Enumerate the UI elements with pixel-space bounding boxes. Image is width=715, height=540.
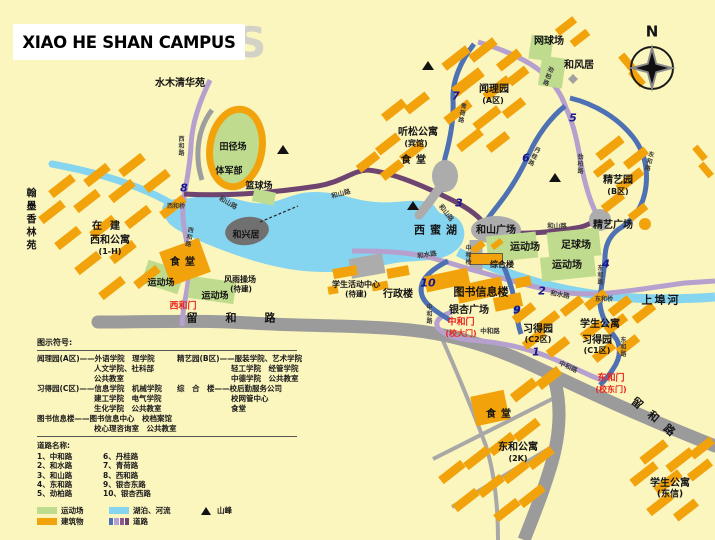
legend-divider (37, 350, 297, 351)
campus-map: S XIAO HE SHAN CAMPUS 水木清华苑田径场体军部篮球场网球场和… (0, 0, 715, 540)
legend-symbol-label: 运动场 (61, 505, 95, 516)
label-zuqiuchang: 足球场 (561, 241, 591, 251)
legend-road-name: 7、青荷路 (103, 461, 193, 470)
legend-road-name: 4、东和路 (37, 480, 103, 489)
label-xuesheng-gongyu-c: 学生公寓 (580, 320, 620, 330)
label-yundongchang-e2: 运动场 (552, 261, 582, 271)
label-wenliyuan: 闻理园 (479, 85, 509, 95)
legend-road-name: 3、和山路 (37, 471, 103, 480)
label-tushuxinxilou: 图书信息楼 (454, 287, 509, 298)
label-gate-zhonghemen: 中和门 (447, 319, 474, 328)
water-swatch-icon (109, 507, 129, 514)
label-lanqiuchang: 篮球场 (245, 183, 272, 192)
label-zonghelou: 综合楼 (490, 261, 514, 269)
legend-entry-line: 轻工学院 经管学院 (231, 364, 302, 374)
peak-triangle-icon (201, 507, 211, 515)
label-shuimuqinghuayuan: 水木清华苑 (155, 79, 205, 89)
legend-symbol-row: 建筑物 道路 (37, 516, 302, 527)
label-zaijian: 在建 (92, 222, 128, 232)
road-label-xihelu-2: 西和路 (183, 226, 193, 248)
label-wenliyuan-zone: (A区) (482, 97, 504, 105)
legend-entry-line: 生化学院 公共教室 (94, 404, 177, 414)
label-yundongchang-w2: 运动场 (201, 293, 228, 302)
label-shitang-west: 食堂 (170, 258, 200, 268)
road-number-5: 5 (569, 113, 577, 124)
building-swatch-icon (37, 518, 57, 525)
legend-road-names: 1、中和路6、丹桂路2、和水路7、青荷路3、和山路8、西和路4、东和路9、银杏东… (37, 452, 302, 498)
label-donghegongyu-sub: (2K) (508, 455, 527, 463)
label-jingyiyuan-zone: (B区) (607, 188, 628, 196)
legend-entry-line: 校网管中心 (231, 394, 302, 404)
label-xingzhenglou: 行政楼 (383, 290, 413, 300)
label-xideyuan-c2-zone: (C2区) (525, 336, 552, 344)
label-xuesheng-huodong-zhongxin: 学生活动中心 (332, 281, 380, 289)
road-number-7: 7 (452, 91, 460, 102)
road-label-heshanlu-2: 和山路 (331, 188, 352, 199)
label-gate-xihemen: 西和门 (169, 303, 196, 312)
legend-explanations: 闻理园(A区)——外语学院 理学院人文学院、社科部公共教室习得园(C区)——信息… (37, 354, 302, 434)
label-tingsonggongyu: 听松公寓 (398, 128, 438, 138)
label-xihegongyu-sub: (1-H) (99, 248, 122, 256)
road-swatch-icon (109, 518, 129, 525)
road-label-donghelu-3: 东和路 (619, 337, 625, 358)
legend-symbol-row: 运动场 湖泊、河流 山峰 (37, 505, 302, 516)
label-ximihu: 西蜜湖 (414, 225, 462, 236)
label-yinxing-guangchang: 银杏广场 (449, 306, 489, 316)
label-zhongheqiao: 中和桥 (464, 245, 470, 266)
legend-entry-line: 中德学院 公共教室 (231, 374, 302, 384)
legend-symbol-label: 山峰 (217, 505, 232, 516)
label-xideyuan-c2: 习得园 (523, 325, 553, 335)
label-gate-zhonghemen-sub: (校大门) (445, 330, 476, 338)
label-dongheqiao: 东和桥 (595, 297, 613, 303)
label-hanmoxianglinyuan: 翰墨香林苑 (24, 188, 34, 253)
label-gate-donghemen: 东和门 (597, 375, 624, 384)
label-yundongchang-w1: 运动场 (147, 280, 174, 289)
label-hefengju: 和风居 (564, 61, 594, 71)
label-heshan-guangchang: 和山广场 (476, 226, 516, 236)
label-xiheqiao: 西和桥 (167, 204, 185, 210)
road-label-zhonghelu-1: 中和路 (425, 304, 431, 325)
legend-divider (37, 436, 297, 437)
legend-entry-line: 公共教室 (94, 374, 177, 384)
legend-symbol-key: 运动场 湖泊、河流 山峰 建筑物 道路 (37, 505, 302, 527)
legend-entry-line: 建工学院 电气学院 (94, 394, 177, 404)
road-label-qinghelu: 青荷路 (456, 102, 466, 124)
legend: 图示符号: 闻理园(A区)——外语学院 理学院人文学院、社科部公共教室习得园(C… (37, 337, 302, 527)
road-number-2: 2 (538, 286, 546, 297)
legend-road-name: 6、丹桂路 (103, 452, 193, 461)
legend-entry-line: 人文学院、社科部 (94, 364, 177, 374)
label-xihegongyu: 西和公寓 (90, 236, 130, 246)
road-label-donghelu-2: 东和路 (596, 265, 602, 286)
label-xideyuan-c1: 习得园 (582, 336, 612, 346)
legend-road-name: 10、银杏西路 (103, 489, 193, 498)
label-tianjingchang: 田径场 (219, 144, 246, 153)
road-label-liuhelu-1: 留和路 (187, 313, 304, 324)
label-xuesheng-gongyu-dongxin-sub: (东信) (657, 491, 683, 500)
legend-entry-line: 闻理园(A区)——外语学院 理学院 (37, 354, 177, 364)
legend-symbol-label: 建筑物 (61, 516, 95, 527)
legend-entry-line: 综 合 楼——校后勤服务公司 (177, 384, 302, 394)
legend-column-left: 闻理园(A区)——外语学院 理学院人文学院、社科部公共教室习得园(C区)——信息… (37, 354, 177, 434)
legend-entry-line: 精艺园(B区)——服装学院、艺术学院 (177, 354, 302, 364)
road-label-xihelu-1: 西和路 (177, 136, 183, 157)
legend-entry-line: 习得园(C区)——信息学院 机械学院 (37, 384, 177, 394)
road-label-jinbailu-1: 劲柏路 (541, 65, 554, 87)
label-xideyuan-c1-zone: (C1区) (584, 347, 611, 355)
label-fengyucaochang-sub: (待建) (230, 285, 252, 293)
road-label-jinbailu-2: 劲柏路 (576, 154, 582, 175)
legend-symbol-label: 道路 (133, 516, 148, 527)
road-label-zhonghelu-2: 中和路 (480, 328, 500, 335)
legend-entry-line: 食堂 (231, 404, 302, 414)
label-fengyucaochang: 风雨操场 (224, 276, 256, 284)
road-number-1: 1 (532, 347, 540, 358)
road-label-donghelu-1: 东和路 (642, 150, 653, 172)
label-wangqiuchang: 网球场 (534, 37, 564, 47)
legend-road-name: 5、劲柏路 (37, 489, 103, 498)
legend-entry-line: 图书信息楼——图书信息中心 校档案馆 (37, 414, 177, 424)
road-label-heshanlu-4: 和山路 (547, 223, 567, 230)
road-number-8: 8 (180, 183, 188, 194)
compass-n-label: N (646, 25, 659, 40)
label-jingyi-guangchang: 精艺广场 (593, 221, 633, 231)
road-label-heshuilu-2: 和水路 (550, 290, 570, 300)
road-number-6: 6 (522, 153, 530, 164)
label-yundongchang-e1: 运动场 (510, 243, 540, 253)
label-xuesheng-gongyu-dongxin: 学生公寓 (650, 479, 690, 489)
label-donghegongyu: 东和公寓 (498, 443, 538, 453)
label-shitang-north: 食堂 (401, 156, 431, 166)
label-tijunbu: 体军部 (215, 168, 242, 177)
legend-symbols-title: 图示符号: (37, 337, 302, 348)
legend-entry-line: 校心理咨询室 公共教室 (94, 424, 177, 434)
label-hexingju: 和兴居 (232, 232, 259, 241)
legend-column-right: 精艺园(B区)——服装学院、艺术学院轻工学院 经管学院中德学院 公共教室综 合 … (177, 354, 302, 434)
legend-roads-title: 道路名称: (37, 441, 302, 451)
label-shangbuhe: 上埠河 (642, 295, 681, 306)
road-label-heshanlu-3: 和山路 (437, 203, 454, 222)
road-number-4: 4 (602, 259, 610, 270)
legend-road-name: 8、西和路 (103, 471, 193, 480)
road-label-zhonghelu-3: 中和路 (558, 360, 578, 374)
legend-road-name: 1、中和路 (37, 452, 103, 461)
label-xuesheng-huodong-sub: (待建) (345, 290, 367, 298)
label-jingyiyuan: 精艺园 (603, 176, 633, 186)
label-shitang-se: 食堂 (486, 410, 516, 420)
road-number-9: 9 (513, 305, 521, 316)
legend-road-name: 2、和水路 (37, 461, 103, 470)
road-label-liuhelu-2: 留和路 (629, 396, 684, 445)
road-number-10: 10 (420, 278, 435, 289)
road-number-3: 3 (455, 198, 463, 209)
road-label-heshanlu-1: 和山路 (218, 195, 238, 210)
road-label-heshuilu-1: 和水路 (417, 250, 437, 259)
label-gate-donghemen-sub: (校东门) (595, 386, 626, 394)
label-tingsonggongyu-sub: (宾馆) (404, 140, 427, 148)
field-swatch-icon (37, 507, 57, 514)
legend-road-name: 9、银杏东路 (103, 480, 193, 489)
legend-symbol-label: 湖泊、河流 (133, 505, 185, 516)
